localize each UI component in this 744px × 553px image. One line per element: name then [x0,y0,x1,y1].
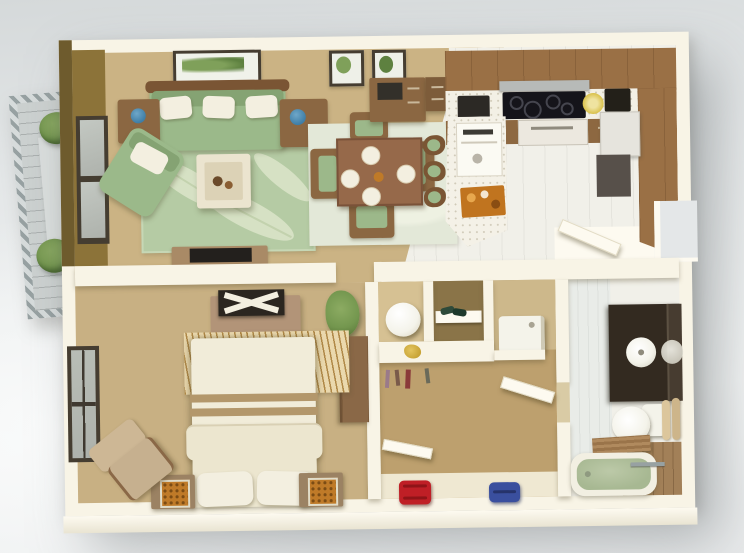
cabinet-handle [431,86,443,88]
tray-food [480,190,489,199]
print-tree-1 [336,56,351,73]
closet-shelf-band [379,340,494,363]
orange-serving-tray [460,185,506,218]
bag-strap [493,490,516,493]
blue-duffel-bag [489,482,520,502]
range-hood-icon [499,80,589,91]
bag-strap [403,496,427,499]
tray-food [466,193,476,203]
toaster-icon [458,95,490,118]
desk-drawer-line [408,101,420,103]
washing-machine [499,316,546,354]
coffee-maker-icon [604,88,630,111]
orange-decor-box [308,478,338,506]
desk-laptop [377,83,402,100]
sink-basin-line [461,141,497,144]
chair-seat [318,156,337,192]
plate-south [362,187,381,206]
red-duffel-bag [399,480,431,504]
dining-table [336,137,423,206]
living-floor-gap-patch [336,262,374,283]
bed-trim-band [190,393,318,403]
oven-front [518,119,588,146]
bar-stool-2 [423,161,445,181]
coffee-table [196,154,251,209]
cabinet-handle [432,98,444,100]
chair-seat [356,206,387,228]
sink-knob [472,154,482,164]
tub-drain [585,471,591,477]
nightstand-right [299,472,343,507]
bed-pillow-left [196,471,254,508]
tray-food [491,199,501,209]
chair-seat [355,120,383,136]
refrigerator [600,111,641,157]
art-foliage [182,57,244,74]
gold-decor [404,344,421,358]
armchair-pillow [128,140,170,176]
bag-strap [403,484,427,487]
glass-pane-upper [80,120,105,176]
burner [510,96,524,110]
divider-wall-west [75,263,336,287]
vessel-sink [626,337,656,367]
floor-plan-render [0,0,744,553]
stool-seat [427,139,440,151]
sofa-pillow-1 [159,95,193,120]
burner [524,101,542,119]
bottom-wall-face [63,508,697,534]
tray-bottle-2 [225,181,233,189]
hanging-clothes-icon [405,369,411,388]
tray-bottle-1 [213,176,223,186]
folded-blanket [186,423,322,461]
small-framed-print-1 [329,50,364,86]
apartment [59,32,696,517]
bed-trim-band [190,407,318,417]
centerpiece [374,172,384,182]
plate-north [361,146,380,165]
oven-handle [531,126,573,130]
flat-tv [190,248,252,263]
plate-east [396,164,415,183]
closet-bath-wall-upper [555,279,569,382]
shower-fixture [631,462,665,466]
writing-desk [369,77,426,122]
towel-roll [672,398,681,440]
coffee-table-tray [204,162,243,201]
sofa-pillow-2 [202,96,235,119]
kitchen-island [444,116,508,247]
bathroom-striped-tiles [568,279,613,464]
heater-niche-wall [423,281,434,341]
closet-bath-wall-lower [557,422,571,496]
sofa-pillow-3 [245,95,278,119]
window-panes [71,350,97,458]
island-sink-unit [456,122,503,177]
print-tree-2 [379,56,393,73]
blue-vase-left [131,108,146,123]
towel-rack [662,398,682,442]
sink-drain [638,349,644,355]
desk-drawer-line [407,87,419,89]
towel-roll [662,400,671,440]
entry-notch-background [654,201,698,263]
cooktop [502,91,585,119]
stool-seat [428,191,441,203]
faucet-icon [463,129,493,134]
plate-west [341,169,360,188]
bath-door-threshold [557,382,571,422]
orange-decor-box [160,480,190,508]
bathtub [571,452,658,496]
blue-vase-right [290,109,306,125]
vanity [608,304,680,402]
burner [561,102,574,115]
divider-wall-east [374,258,679,282]
washer-dial [529,322,535,328]
washer-niche-wall [494,350,545,361]
burner [546,94,561,109]
stool-seat [427,165,440,177]
sofa [149,83,286,151]
under-counter-unit [596,154,631,196]
